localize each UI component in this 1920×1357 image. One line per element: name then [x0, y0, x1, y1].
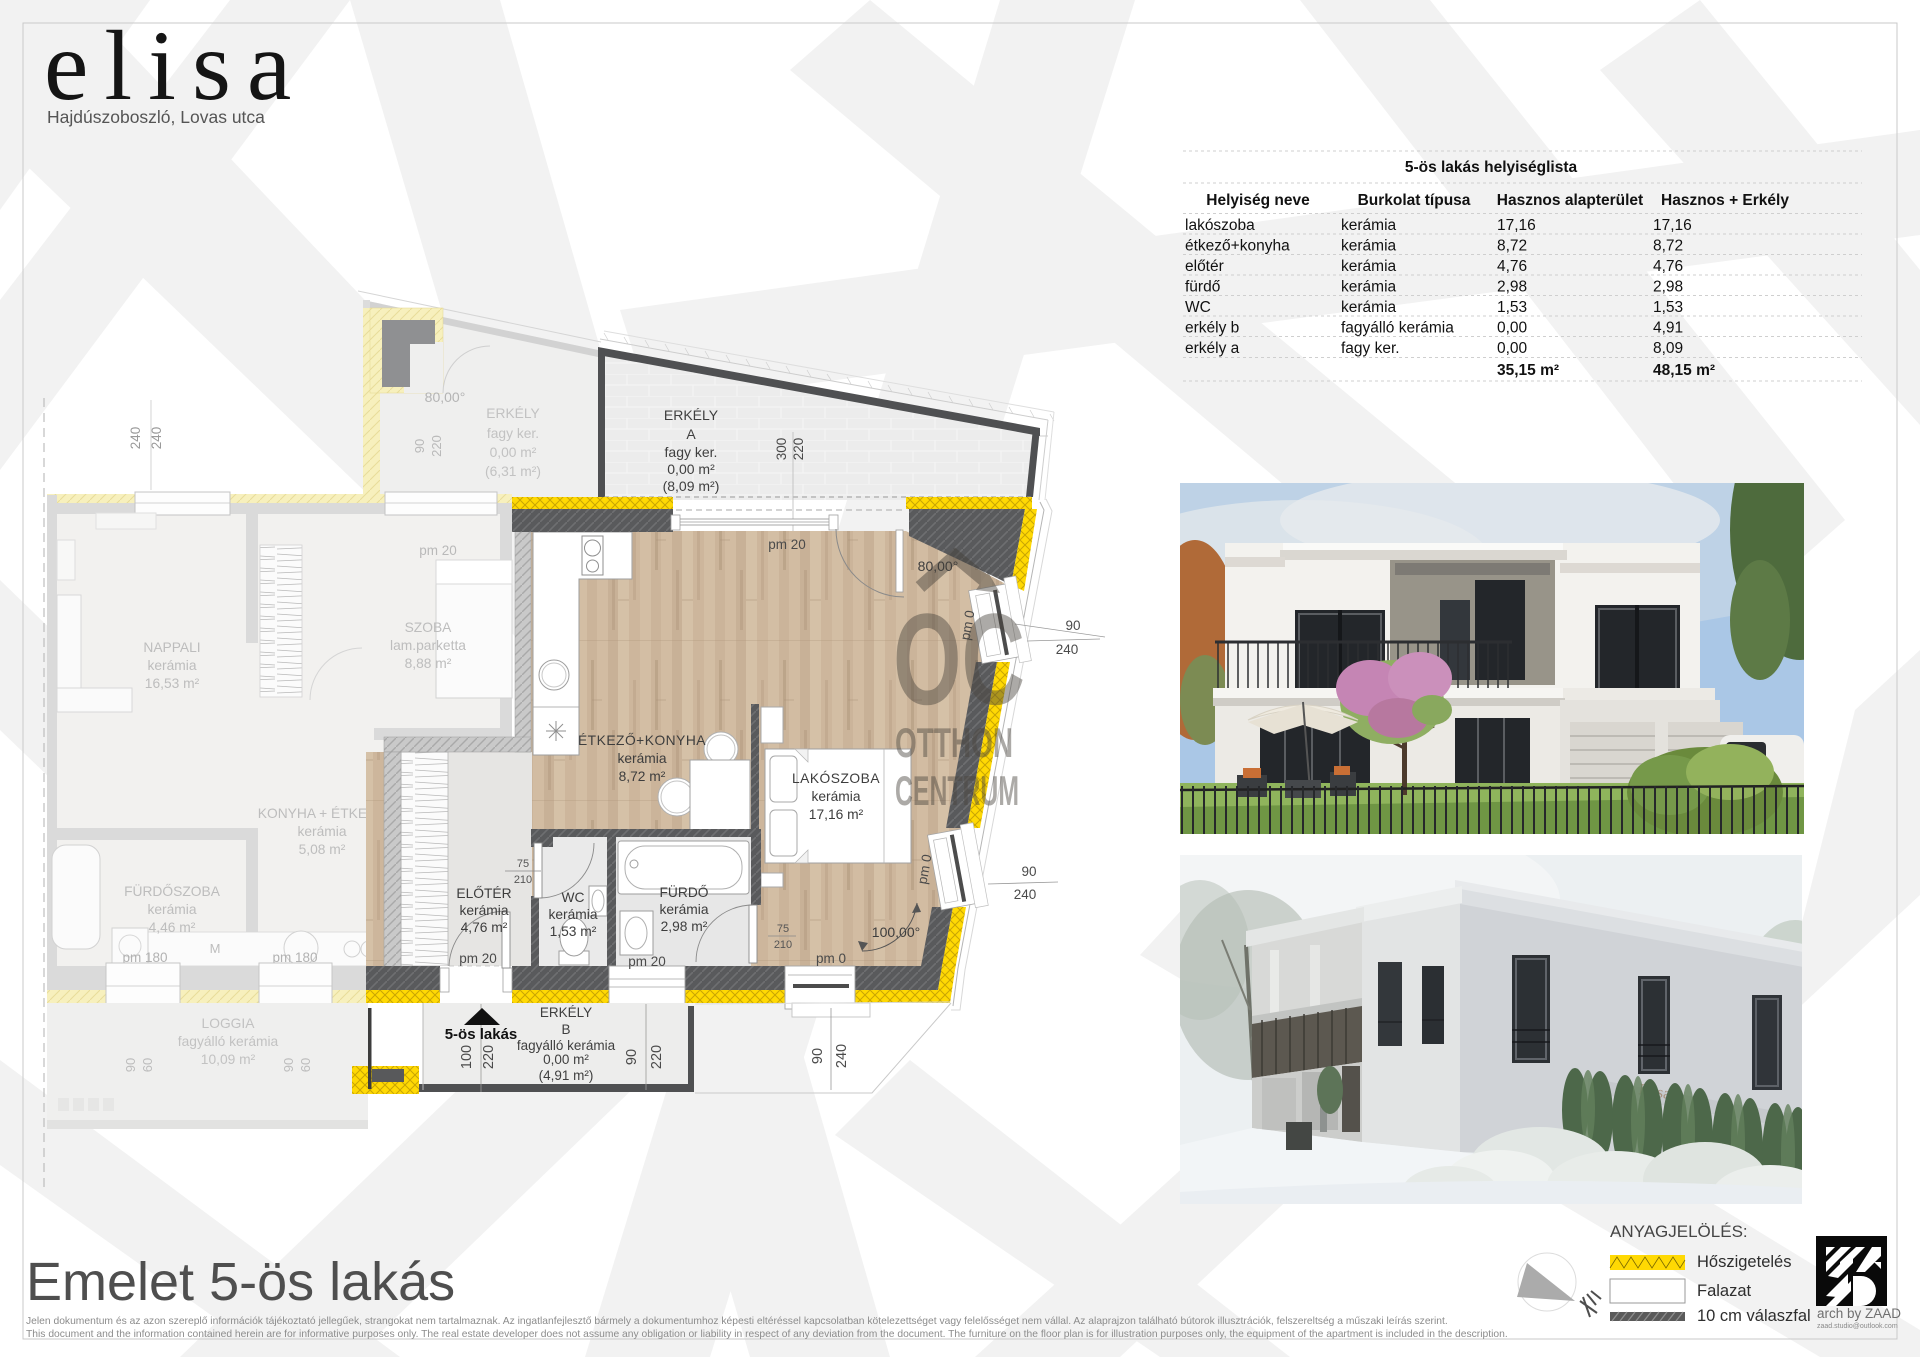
svg-text:220: 220 — [791, 438, 806, 461]
svg-text:5,08 m²: 5,08 m² — [299, 842, 346, 857]
svg-text:(4,91 m²): (4,91 m²) — [539, 1068, 594, 1083]
svg-text:OTTHON: OTTHON — [895, 719, 1013, 766]
svg-text:300: 300 — [774, 438, 789, 461]
svg-text:35,15 m²: 35,15 m² — [1497, 362, 1559, 379]
svg-text:Hőszigetelés: Hőszigetelés — [1697, 1253, 1791, 1271]
svg-text:0,00 m²: 0,00 m² — [490, 445, 537, 460]
svg-text:arch by ZAAD: arch by ZAAD — [1817, 1306, 1901, 1321]
svg-text:90: 90 — [1065, 618, 1080, 633]
svg-text:kerámia: kerámia — [147, 658, 196, 673]
svg-text:75: 75 — [777, 923, 789, 935]
svg-text:8,88 m²: 8,88 m² — [405, 656, 452, 671]
svg-text:kerámia: kerámia — [459, 903, 508, 918]
svg-text:kerámia: kerámia — [811, 789, 860, 804]
svg-text:4,46 m²: 4,46 m² — [149, 920, 196, 935]
svg-text:fagy ker.: fagy ker. — [665, 444, 718, 460]
svg-text:Hajdúszoboszló, Lovas utca: Hajdúszoboszló, Lovas utca — [47, 107, 265, 127]
svg-text:4,91: 4,91 — [1653, 320, 1683, 337]
svg-text:0,00 m²: 0,00 m² — [667, 461, 715, 477]
svg-text:210: 210 — [774, 939, 792, 951]
svg-text:kerámia: kerámia — [1341, 299, 1397, 316]
svg-text:CENTRUM: CENTRUM — [895, 767, 1019, 814]
svg-text:WC: WC — [562, 890, 585, 905]
svg-text:This document and the informat: This document and the information contai… — [26, 1329, 1508, 1340]
svg-text:17,16 m²: 17,16 m² — [809, 807, 864, 822]
svg-text:pm 20: pm 20 — [459, 951, 497, 966]
svg-text:8,72 m²: 8,72 m² — [619, 769, 666, 784]
svg-text:48,15 m²: 48,15 m² — [1653, 362, 1715, 379]
svg-text:8,72: 8,72 — [1497, 238, 1527, 255]
svg-text:17,16: 17,16 — [1653, 217, 1692, 234]
svg-text:LOGGIA: LOGGIA — [202, 1016, 256, 1031]
svg-text:ERKÉLY: ERKÉLY — [486, 405, 539, 421]
svg-text:lam.parketta: lam.parketta — [390, 638, 466, 653]
svg-text:(6,31 m²): (6,31 m²) — [485, 464, 541, 479]
svg-text:60: 60 — [140, 1058, 155, 1072]
svg-text:16,53 m²: 16,53 m² — [145, 676, 200, 691]
svg-text:Falazat: Falazat — [1697, 1282, 1752, 1300]
svg-text:90: 90 — [810, 1048, 826, 1064]
svg-text:240: 240 — [1056, 642, 1079, 657]
svg-text:2,98 m²: 2,98 m² — [661, 919, 708, 934]
svg-text:10,09 m²: 10,09 m² — [201, 1052, 256, 1067]
svg-text:FÜRDŐ: FÜRDŐ — [659, 883, 708, 900]
svg-text:4,76 m²: 4,76 m² — [461, 920, 508, 935]
svg-text:kerámia: kerámia — [1341, 238, 1397, 255]
svg-text:ÉTKEZŐ+KONYHA: ÉTKEZŐ+KONYHA — [578, 732, 706, 748]
svg-text:10 cm válaszfal: 10 cm válaszfal — [1697, 1307, 1811, 1325]
svg-text:1,53: 1,53 — [1497, 299, 1527, 316]
svg-text:Emelet 5-ös lakás: Emelet 5-ös lakás — [26, 1252, 455, 1312]
svg-text:erkély b: erkély b — [1185, 320, 1239, 337]
svg-text:220: 220 — [429, 435, 444, 457]
svg-text:Hasznos alapterület: Hasznos alapterület — [1497, 192, 1643, 209]
svg-text:kerámia: kerámia — [548, 907, 597, 922]
svg-text:ANYAGJELÖLÉS:: ANYAGJELÖLÉS: — [1610, 1222, 1748, 1241]
svg-text:8,72: 8,72 — [1653, 238, 1683, 255]
svg-text:fagyálló kerámia: fagyálló kerámia — [1341, 320, 1454, 337]
svg-text:220: 220 — [481, 1045, 497, 1069]
svg-text:pm 20: pm 20 — [628, 954, 666, 969]
svg-text:kerámia: kerámia — [147, 902, 196, 917]
svg-text:(8,09 m²): (8,09 m²) — [663, 478, 720, 494]
svg-text:OC: OC — [893, 586, 1025, 732]
svg-text:ELŐTÉR: ELŐTÉR — [456, 885, 511, 901]
svg-text:Hasznos + Erkély: Hasznos + Erkély — [1661, 192, 1789, 209]
svg-text:pm 20: pm 20 — [419, 543, 457, 558]
svg-text:B: B — [561, 1022, 570, 1037]
svg-text:17,16: 17,16 — [1497, 217, 1536, 234]
svg-text:NAPPALI: NAPPALI — [143, 640, 200, 655]
svg-text:4,76: 4,76 — [1497, 258, 1527, 275]
svg-text:2,98: 2,98 — [1653, 279, 1683, 296]
svg-text:kerámia: kerámia — [297, 824, 346, 839]
svg-text:kerámia: kerámia — [1341, 258, 1397, 275]
svg-text:5-ös lakás helyiséglista: 5-ös lakás helyiséglista — [1405, 159, 1578, 176]
svg-text:Jelen dokumentum és az azon sz: Jelen dokumentum és az azon szereplő inf… — [26, 1316, 1448, 1327]
svg-text:75: 75 — [517, 858, 529, 870]
svg-text:90: 90 — [1021, 864, 1036, 879]
svg-text:lakószoba: lakószoba — [1185, 217, 1255, 234]
svg-text:240: 240 — [128, 427, 143, 450]
svg-text:kerámia: kerámia — [617, 751, 666, 766]
svg-text:fagyálló kerámia: fagyálló kerámia — [517, 1038, 616, 1053]
svg-text:kerámia: kerámia — [1341, 279, 1397, 296]
svg-text:fagy ker.: fagy ker. — [1341, 340, 1400, 357]
svg-text:kerámia: kerámia — [1341, 217, 1397, 234]
svg-text:WC: WC — [1185, 299, 1211, 316]
svg-text:A: A — [686, 426, 696, 442]
svg-text:8,09: 8,09 — [1653, 340, 1683, 357]
svg-text:90: 90 — [281, 1058, 296, 1072]
svg-text:étkező+konyha: étkező+konyha — [1185, 238, 1290, 255]
svg-text:90: 90 — [624, 1049, 640, 1065]
svg-text:M: M — [210, 941, 221, 956]
svg-text:előtér: előtér — [1185, 258, 1224, 275]
svg-text:0,00 m²: 0,00 m² — [543, 1052, 589, 1067]
svg-text:Helyiség neve: Helyiség neve — [1206, 192, 1310, 209]
svg-text:LAKÓSZOBA: LAKÓSZOBA — [792, 770, 880, 786]
svg-text:zaad.studio@outlook.com: zaad.studio@outlook.com — [1817, 1323, 1898, 1330]
svg-text:Burkolat típusa: Burkolat típusa — [1358, 192, 1471, 209]
svg-text:0,00: 0,00 — [1497, 320, 1528, 337]
svg-text:1,53 m²: 1,53 m² — [550, 924, 597, 939]
svg-text:90: 90 — [123, 1058, 138, 1072]
svg-text:fagy ker.: fagy ker. — [487, 426, 539, 441]
svg-text:elisa: elisa — [44, 10, 307, 121]
svg-text:80,00°: 80,00° — [425, 389, 466, 405]
svg-text:210: 210 — [514, 874, 532, 886]
svg-text:240: 240 — [1014, 887, 1037, 902]
svg-text:erkély a: erkély a — [1185, 340, 1240, 357]
svg-text:0,00: 0,00 — [1497, 340, 1528, 357]
svg-text:100: 100 — [459, 1045, 475, 1069]
svg-text:ERKÉLY: ERKÉLY — [540, 1005, 592, 1020]
svg-text:90: 90 — [412, 439, 427, 453]
svg-text:FÜRDŐSZOBA: FÜRDŐSZOBA — [124, 882, 221, 899]
svg-text:fürdő: fürdő — [1185, 279, 1220, 296]
svg-text:5-ös lakás: 5-ös lakás — [445, 1026, 518, 1043]
svg-text:4,76: 4,76 — [1653, 258, 1683, 275]
svg-text:1,53: 1,53 — [1653, 299, 1683, 316]
svg-text:pm 0: pm 0 — [816, 951, 846, 966]
svg-text:240: 240 — [834, 1044, 850, 1068]
svg-text:SZOBA: SZOBA — [405, 620, 453, 635]
svg-text:fagyálló kerámia: fagyálló kerámia — [178, 1034, 279, 1049]
svg-text:kerámia: kerámia — [659, 902, 708, 917]
svg-text:60: 60 — [298, 1058, 313, 1072]
svg-text:2,98: 2,98 — [1497, 279, 1527, 296]
svg-text:ERKÉLY: ERKÉLY — [664, 407, 719, 423]
svg-text:100,00°: 100,00° — [872, 924, 920, 940]
svg-text:220: 220 — [649, 1045, 665, 1069]
svg-text:pm 20: pm 20 — [768, 537, 806, 552]
